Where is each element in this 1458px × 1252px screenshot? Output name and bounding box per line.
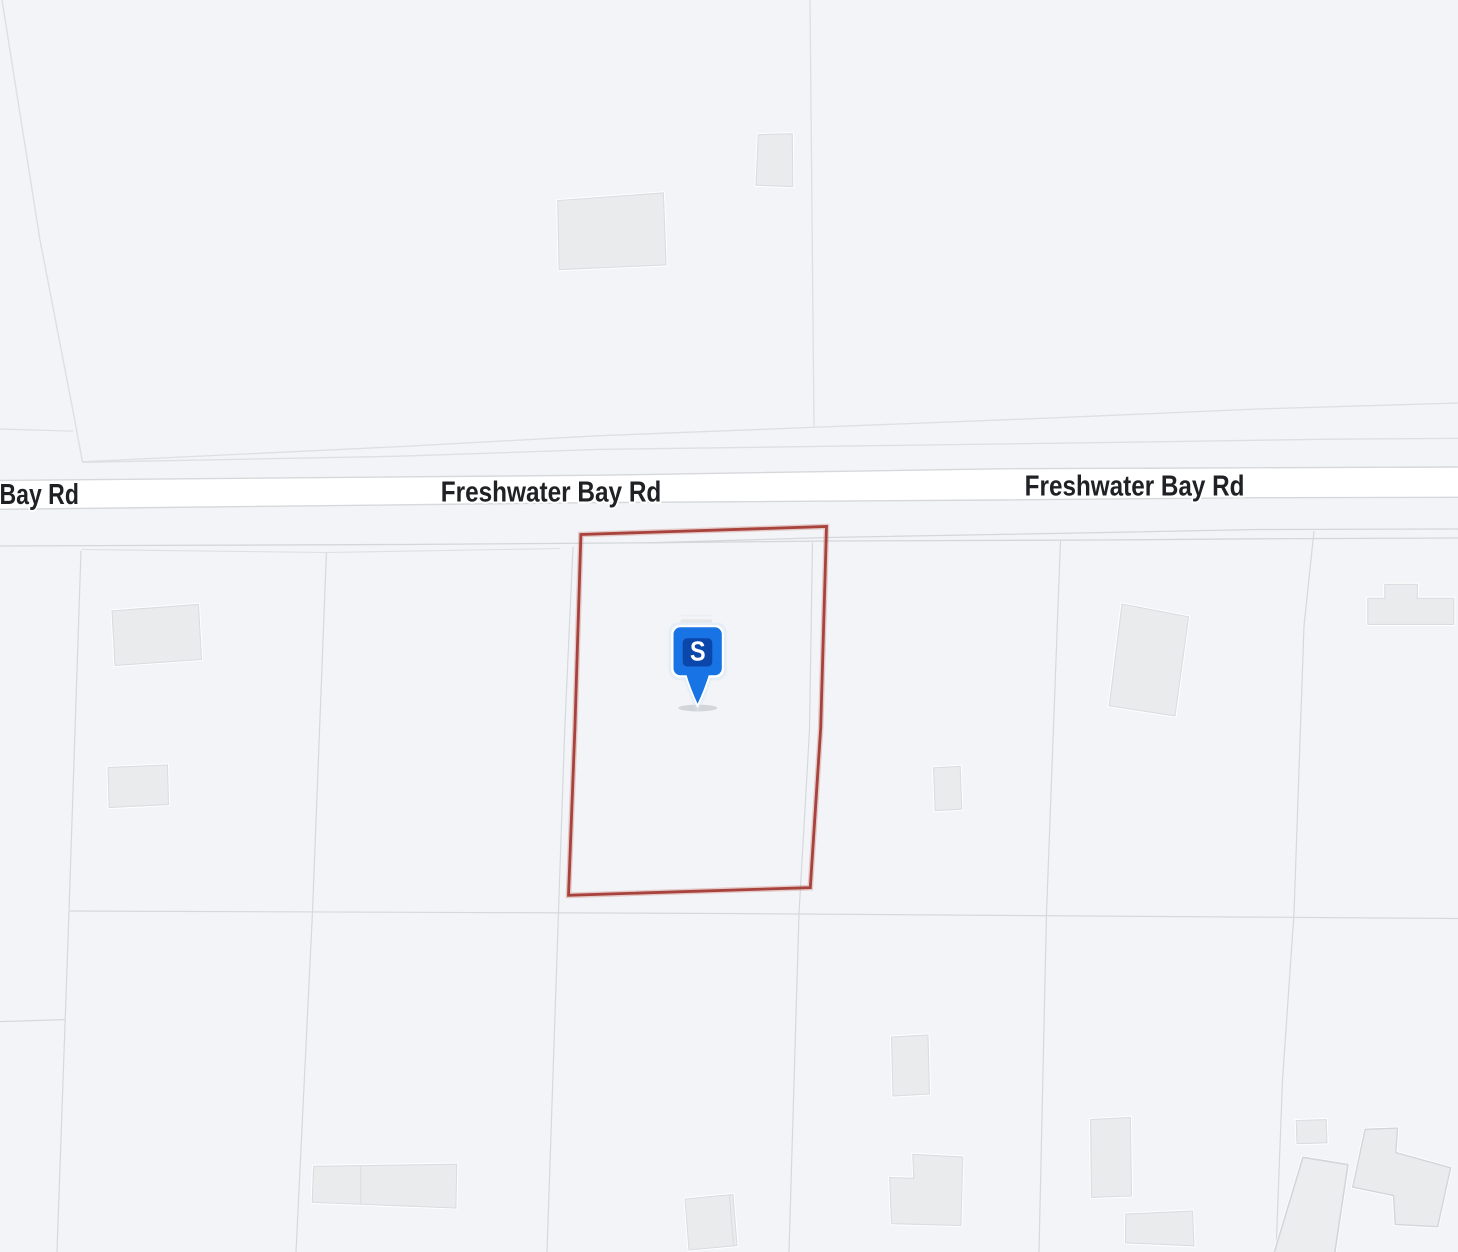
svg-text:Freshwater Bay Rd: Freshwater Bay Rd (1025, 469, 1245, 502)
svg-text:Freshwater Bay Rd: Freshwater Bay Rd (441, 475, 662, 507)
svg-text:Bay Rd: Bay Rd (0, 477, 79, 510)
svg-text:S: S (690, 637, 706, 667)
